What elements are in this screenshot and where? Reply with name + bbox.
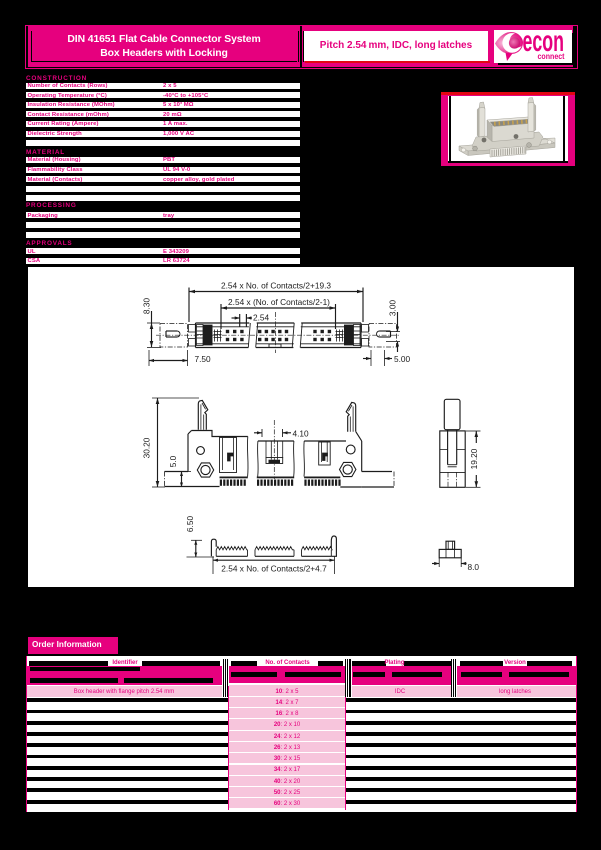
svg-text:5.00: 5.00 [394,354,411,364]
svg-text:2.54 x (No. of Contacts/2-1): 2.54 x (No. of Contacts/2-1) [228,297,330,307]
svg-text:connect: connect [538,50,565,60]
svg-text:2.54 x No. of Contacts/2+19.3: 2.54 x No. of Contacts/2+19.3 [221,281,331,291]
svg-text:3.00: 3.00 [388,300,398,317]
svg-text:30.20: 30.20 [142,437,152,458]
svg-text:6.50: 6.50 [185,516,195,533]
svg-text:7.50: 7.50 [195,354,212,364]
svg-text:8.30: 8.30 [142,298,152,315]
svg-text:4.10: 4.10 [293,429,310,439]
svg-text:19.20: 19.20 [469,448,479,469]
svg-text:5.0: 5.0 [168,455,178,467]
svg-text:8.0: 8.0 [468,562,480,572]
svg-text:2.54 x No. of Contacts/2+4.7: 2.54 x No. of Contacts/2+4.7 [221,564,327,574]
svg-text:2.54: 2.54 [253,313,270,323]
